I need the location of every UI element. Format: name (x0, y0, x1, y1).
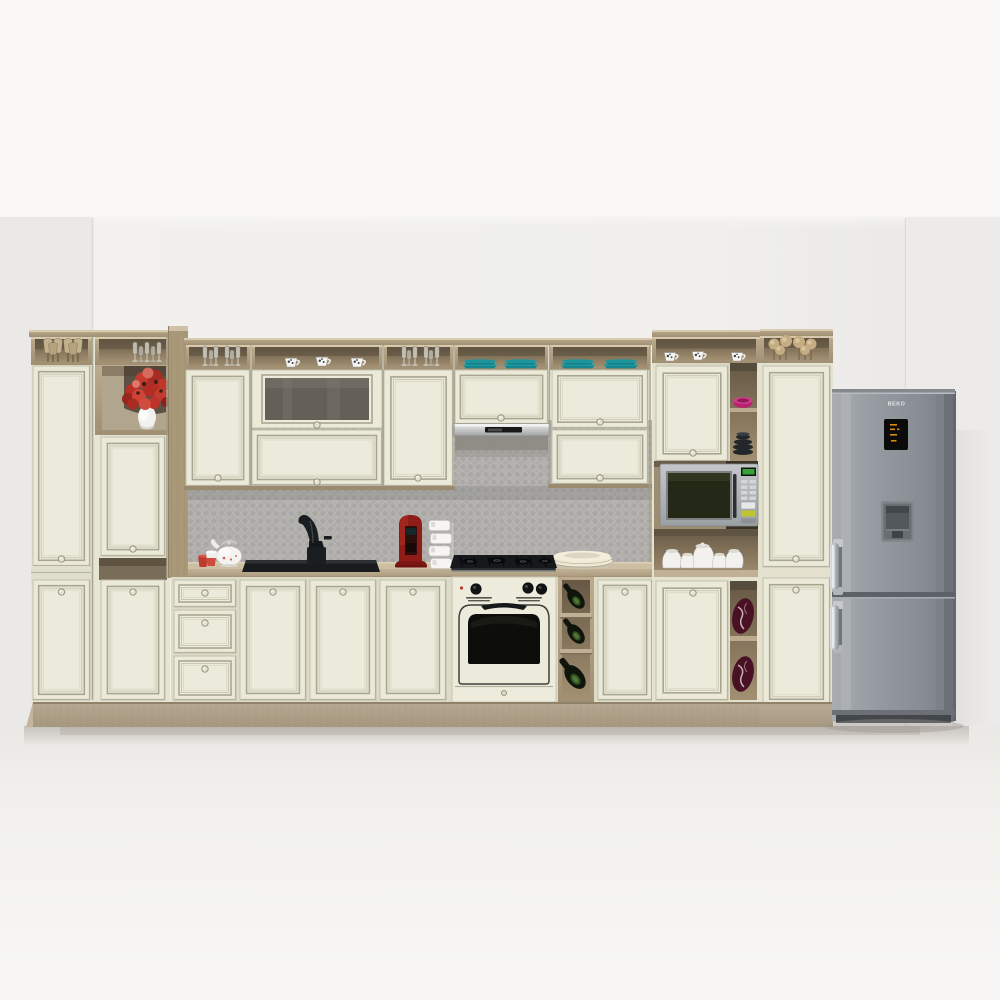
svg-text:BEKO: BEKO (888, 402, 906, 408)
